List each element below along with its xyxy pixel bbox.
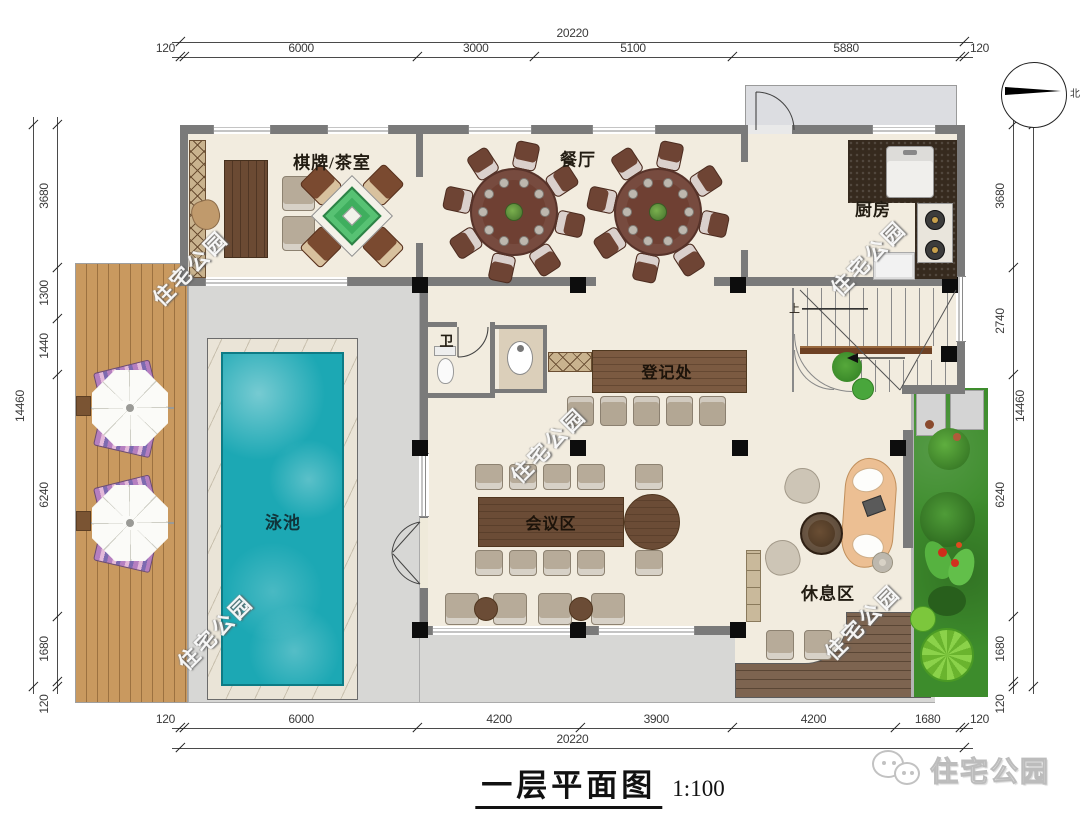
room-label-meeting: 会议区 (525, 510, 576, 534)
column (890, 440, 906, 456)
french-door-gap (420, 518, 428, 588)
room-label-chess-tea: 棋牌/茶室 (293, 149, 371, 174)
side-round-table (569, 597, 593, 621)
garden-flower (951, 559, 959, 567)
wechat-icon (872, 748, 922, 792)
meeting-chair (577, 464, 605, 490)
dimension-line (57, 117, 58, 694)
wall-chess-dining-b (416, 243, 423, 279)
north-label: 北 (1070, 85, 1080, 100)
dimension-label: 120 (156, 712, 175, 726)
dimension-label: 1680 (993, 636, 1007, 662)
window (327, 125, 389, 134)
dimension-line (172, 57, 973, 58)
window (872, 125, 936, 134)
stair-plant (832, 352, 862, 382)
stove-burner-center (932, 247, 938, 253)
wall-chess-dining-a (416, 132, 423, 177)
dimension-label: 120 (37, 695, 51, 714)
window (432, 626, 572, 635)
garden-bush (928, 428, 970, 470)
wall-dining-kitchen-b (741, 250, 748, 279)
table-plate (628, 189, 638, 199)
side-round-table (474, 597, 498, 621)
registration-stool (699, 396, 726, 426)
wall-wc-top (423, 322, 457, 327)
meeting-chair (543, 550, 571, 576)
dimension-label: 6000 (288, 712, 314, 726)
dimension-label: 1300 (37, 280, 51, 306)
drawing-scale: 1:100 (672, 776, 724, 801)
wc-sink-faucet (517, 345, 524, 352)
table-plate (643, 178, 653, 188)
wall-wc-left (423, 322, 428, 398)
dimension-label: 20220 (557, 732, 589, 746)
wc-toilet-bowl (437, 358, 454, 384)
registration-stool (567, 396, 594, 426)
dimension-line (172, 728, 973, 729)
stair-up-line (802, 308, 868, 309)
window (205, 277, 348, 286)
garden-flower (938, 548, 947, 557)
north-arrow-compass: 北 (1001, 62, 1067, 128)
room-label-registration: 登记处 (641, 359, 692, 383)
dimension-label: 2740 (993, 308, 1007, 334)
kitchen-fridge (873, 252, 915, 280)
registration-cabinet-hatch (548, 352, 592, 372)
dimension-label: 14460 (13, 390, 27, 422)
table-plate (484, 189, 494, 199)
column (412, 622, 428, 638)
table-plate (622, 207, 632, 217)
dimension-label: 6240 (37, 483, 51, 509)
column (732, 440, 748, 456)
garden-tree (920, 492, 975, 547)
wall-wc-bottom (423, 393, 495, 398)
dimension-label: 3680 (37, 184, 51, 210)
dimension-line (33, 117, 34, 694)
meeting-chair (635, 464, 663, 490)
deck-side-table (76, 511, 91, 531)
lounge-shelf (746, 550, 761, 622)
garden-berry (953, 433, 961, 441)
table-plate (678, 189, 688, 199)
dimension-label: 120 (970, 712, 989, 726)
wall-stair-bottom (902, 385, 957, 394)
drawing-title-block: 一层平面图1:100 (475, 760, 724, 805)
wall-dining-kitchen-a (741, 132, 748, 162)
porch-door-gap (748, 125, 792, 134)
dimension-line (172, 42, 973, 43)
column (570, 440, 586, 456)
dimension-label: 1680 (37, 636, 51, 662)
registration-stool (633, 396, 660, 426)
dimension-label: 3680 (993, 184, 1007, 210)
wall-alcove-bottom (495, 389, 547, 393)
dimension-label: 120 (993, 695, 1007, 714)
garden-lotus-leaf (920, 628, 974, 682)
window (598, 626, 695, 635)
dimension-line (1033, 117, 1034, 694)
drawing-title-text: 一层平面图 (475, 768, 662, 809)
window (213, 125, 271, 134)
dimension-label: 6240 (993, 483, 1007, 509)
room-label-kitchen: 厨房 (855, 196, 891, 221)
kitchen-faucet (903, 150, 917, 155)
stair-plant (852, 378, 874, 400)
table-plate (540, 207, 550, 217)
dimension-line (172, 748, 973, 749)
column (412, 440, 428, 456)
garden-lotus-leaf (910, 606, 936, 632)
dimension-label: 4200 (801, 712, 827, 726)
wall-alcove-right (543, 325, 547, 393)
wall-top (180, 125, 965, 134)
deck-side-table (76, 396, 91, 416)
meeting-chair (475, 550, 503, 576)
stove-burner-center (932, 217, 938, 223)
lounge-ottoman (804, 630, 832, 660)
dimension-label: 1440 (37, 334, 51, 360)
lounge-ottoman (766, 630, 794, 660)
column (412, 277, 428, 293)
lounge-row-chair (493, 593, 527, 625)
meeting-chair (635, 550, 663, 576)
column (730, 622, 746, 638)
window (468, 125, 532, 134)
dimension-label: 1680 (915, 712, 941, 726)
column (570, 277, 586, 293)
garden-berry (925, 420, 934, 429)
coffee-table (800, 512, 843, 555)
floorplan-canvas: 住宅公园住宅公园住宅公园住宅公园住宅公园12060003000510058801… (0, 0, 1080, 826)
table-plate (478, 207, 488, 217)
room-label-wc: 卫 (440, 331, 455, 351)
meeting-chair (509, 550, 537, 576)
registration-stool (600, 396, 627, 426)
meeting-chair (543, 464, 571, 490)
meeting-chair (509, 464, 537, 490)
lounge-row-chair (591, 593, 625, 625)
column (942, 277, 958, 293)
column (570, 622, 586, 638)
table-plate (534, 189, 544, 199)
room-label-pool: 泳池 (265, 509, 301, 534)
window (592, 125, 656, 134)
table-centerpiece (505, 203, 523, 221)
garden-flower (956, 542, 962, 548)
brand-logo: 住宅公园 (872, 748, 1050, 792)
wall-right (957, 125, 965, 394)
meeting-chair (475, 464, 503, 490)
wall-left-topband (180, 125, 188, 285)
room-label-dining: 餐厅 (560, 146, 596, 171)
table-plate (684, 207, 694, 217)
table-plate (519, 178, 529, 188)
dimension-label: 3900 (644, 712, 670, 726)
floorplan-drawing: 住宅公园住宅公园住宅公园住宅公园住宅公园12060003000510058801… (0, 0, 1080, 826)
tea-desk (224, 160, 268, 258)
column (730, 277, 746, 293)
meeting-round-table (624, 494, 680, 550)
garden-stepping-pad (950, 390, 984, 430)
column (941, 346, 957, 362)
side-table (872, 552, 893, 573)
room-label-lounge: 休息区 (801, 580, 855, 605)
meeting-chair (577, 550, 605, 576)
umbrella-center (126, 404, 134, 412)
table-centerpiece (649, 203, 667, 221)
brand-logo-text: 住宅公园 (930, 750, 1050, 790)
dimension-label: 14460 (1013, 390, 1027, 422)
umbrella-center (126, 519, 134, 527)
table-plate (499, 178, 509, 188)
stairs-up-label: 上 (789, 300, 801, 316)
wall-wc-right (490, 322, 495, 398)
lounge-row-chair (538, 593, 572, 625)
window (419, 453, 429, 517)
dimension-label: 20220 (557, 26, 589, 40)
dimension-label: 4200 (486, 712, 512, 726)
table-plate (663, 178, 673, 188)
registration-stool (666, 396, 693, 426)
north-needle-icon (1005, 87, 1061, 95)
